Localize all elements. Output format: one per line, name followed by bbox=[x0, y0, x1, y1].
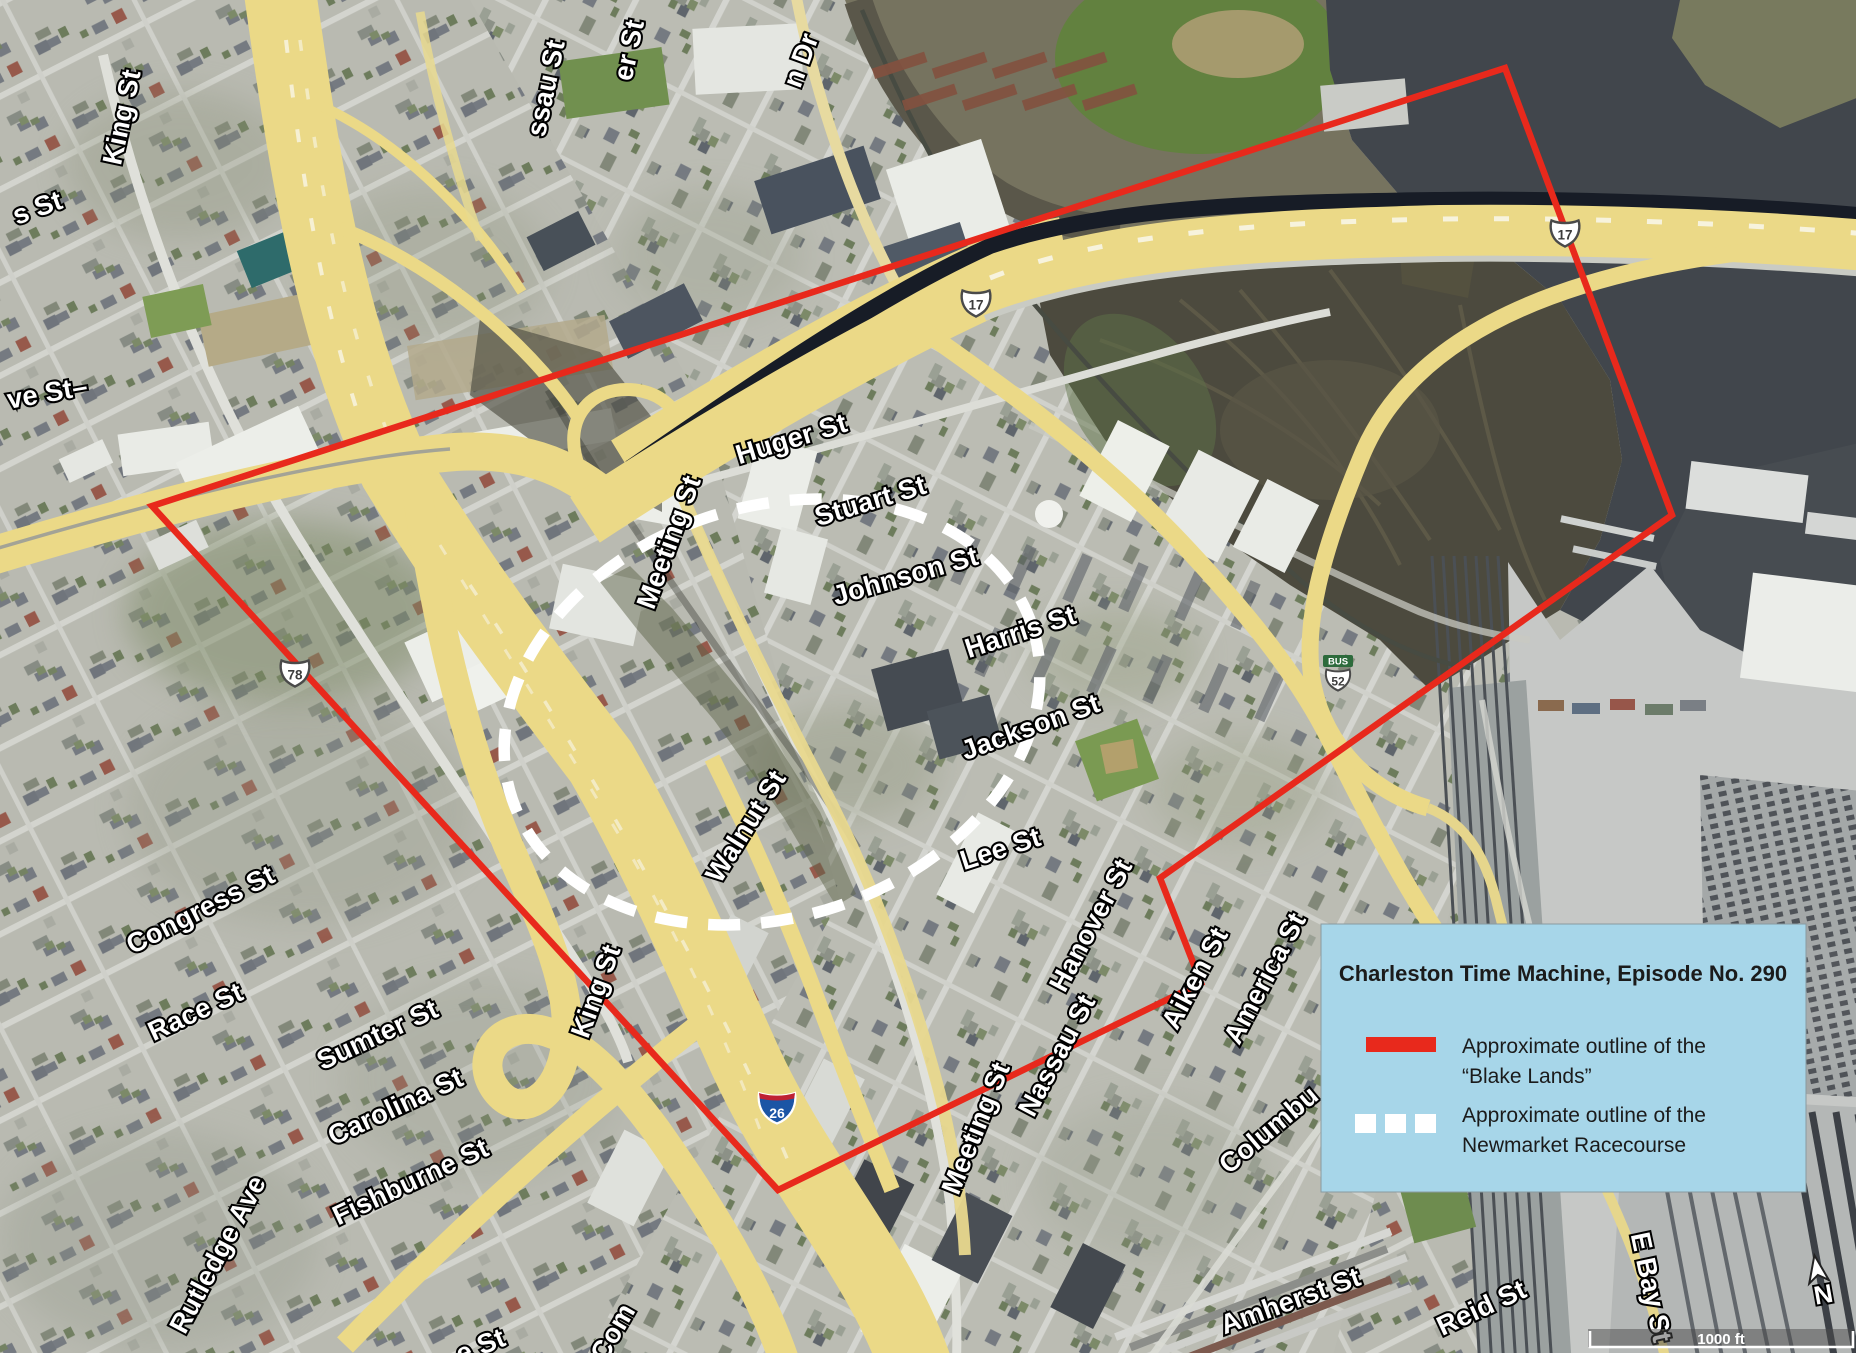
svg-text:Newmarket Racecourse: Newmarket Racecourse bbox=[1462, 1134, 1686, 1157]
svg-text:26: 26 bbox=[769, 1105, 785, 1121]
svg-text:Approximate outline of the: Approximate outline of the bbox=[1462, 1035, 1706, 1058]
svg-text:78: 78 bbox=[287, 668, 303, 683]
svg-text:52: 52 bbox=[1331, 675, 1345, 689]
svg-text:BUS: BUS bbox=[1328, 657, 1348, 668]
svg-text:Charleston Time Machine, Episo: Charleston Time Machine, Episode No. 290 bbox=[1339, 961, 1787, 986]
svg-text:17: 17 bbox=[968, 298, 983, 313]
svg-text:17: 17 bbox=[1557, 228, 1572, 243]
svg-text:“Blake Lands”: “Blake Lands” bbox=[1462, 1065, 1592, 1088]
svg-text:1000 ft: 1000 ft bbox=[1697, 1331, 1745, 1348]
svg-text:Approximate outline of the: Approximate outline of the bbox=[1462, 1104, 1706, 1127]
